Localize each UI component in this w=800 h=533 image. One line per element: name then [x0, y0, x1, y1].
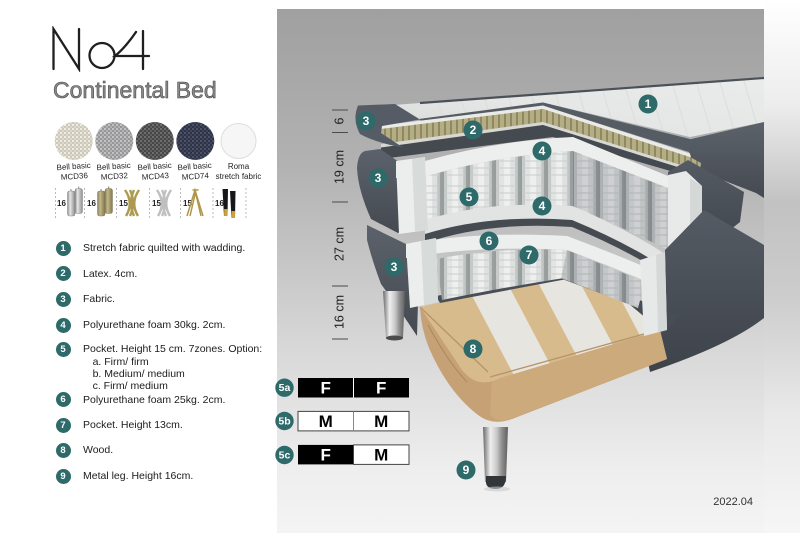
svg-text:3: 3 — [391, 260, 398, 274]
svg-text:4: 4 — [539, 199, 546, 213]
svg-text:F: F — [321, 445, 331, 464]
svg-text:6: 6 — [332, 117, 346, 124]
svg-text:15: 15 — [119, 199, 128, 208]
svg-text:2022.04: 2022.04 — [713, 496, 753, 508]
svg-text:16: 16 — [87, 199, 96, 208]
svg-text:5c: 5c — [279, 450, 291, 462]
svg-text:5a: 5a — [279, 382, 291, 394]
svg-text:4: 4 — [539, 144, 546, 158]
svg-text:3: 3 — [375, 171, 382, 185]
svg-text:9: 9 — [463, 463, 470, 477]
svg-text:M: M — [374, 445, 388, 464]
svg-text:19 cm: 19 cm — [332, 150, 346, 184]
svg-text:F: F — [376, 379, 386, 398]
svg-text:3: 3 — [363, 114, 370, 128]
svg-text:8: 8 — [470, 342, 477, 356]
svg-text:F: F — [321, 379, 331, 398]
svg-text:5: 5 — [466, 190, 473, 204]
svg-text:16: 16 — [215, 199, 224, 208]
svg-text:5b: 5b — [278, 416, 290, 428]
svg-text:27 cm: 27 cm — [332, 227, 346, 261]
svg-text:1: 1 — [645, 97, 652, 111]
svg-text:15: 15 — [152, 199, 161, 208]
svg-text:2: 2 — [470, 123, 477, 137]
svg-text:16: 16 — [57, 199, 66, 208]
svg-text:M: M — [374, 412, 388, 431]
svg-text:M: M — [319, 412, 333, 431]
svg-text:7: 7 — [526, 248, 533, 262]
svg-text:16 cm: 16 cm — [332, 295, 346, 329]
svg-text:6: 6 — [486, 234, 493, 248]
